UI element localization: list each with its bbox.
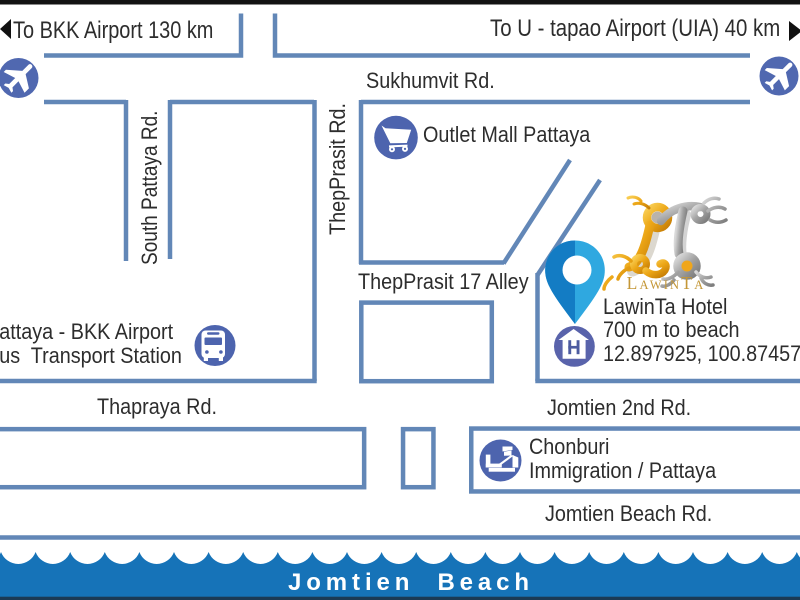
svg-text:LAWINTA: LAWINTA [627, 273, 706, 293]
